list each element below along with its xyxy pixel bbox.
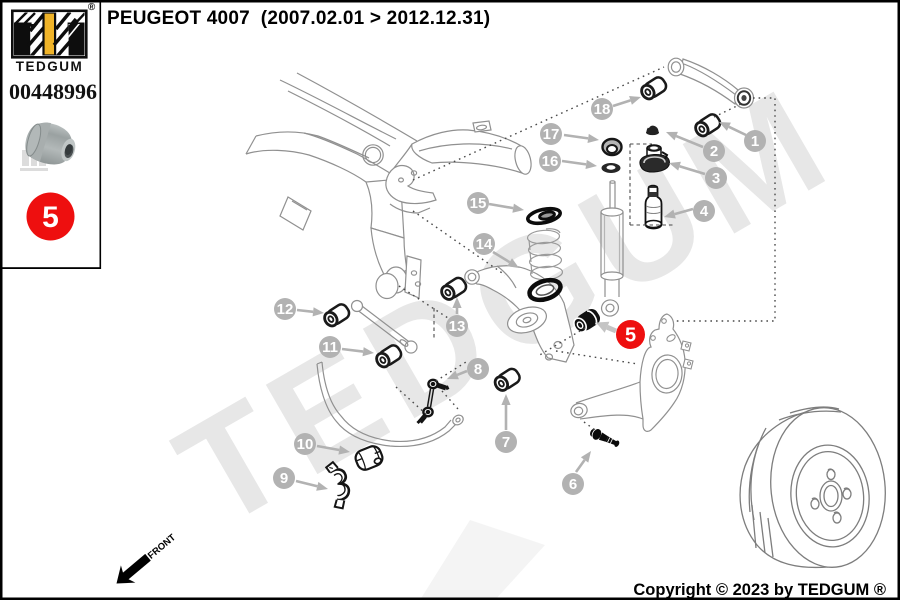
svg-text:14: 14 (476, 236, 493, 253)
svg-text:11: 11 (322, 339, 338, 356)
svg-text:17: 17 (543, 126, 560, 143)
svg-text:6: 6 (569, 476, 577, 493)
svg-text:18: 18 (594, 101, 611, 118)
svg-text:Copyright © 2023 by TEDGUM ®: Copyright © 2023 by TEDGUM ® (633, 581, 886, 599)
svg-text:®: ® (88, 2, 96, 13)
svg-text:15: 15 (470, 195, 487, 212)
svg-text:5: 5 (625, 325, 636, 347)
svg-text:PEUGEOT 4007 (2007.02.01 > 20: PEUGEOT 4007 (2007.02.01 > 2012.12.31) (107, 8, 490, 29)
svg-text:5: 5 (42, 201, 59, 234)
svg-text:7: 7 (502, 434, 510, 451)
svg-text:10: 10 (297, 436, 314, 453)
svg-text:9: 9 (280, 470, 288, 487)
svg-text:00448996: 00448996 (9, 79, 97, 104)
svg-text:1: 1 (751, 133, 759, 150)
svg-text:4: 4 (700, 203, 709, 220)
svg-text:8: 8 (474, 361, 482, 378)
svg-text:12: 12 (277, 301, 294, 318)
svg-text:TEDGUM: TEDGUM (16, 59, 84, 74)
svg-text:3: 3 (712, 170, 720, 187)
svg-text:2: 2 (710, 143, 718, 160)
svg-text:FRONT: FRONT (146, 532, 178, 562)
svg-text:13: 13 (449, 318, 466, 335)
svg-text:16: 16 (542, 153, 559, 170)
